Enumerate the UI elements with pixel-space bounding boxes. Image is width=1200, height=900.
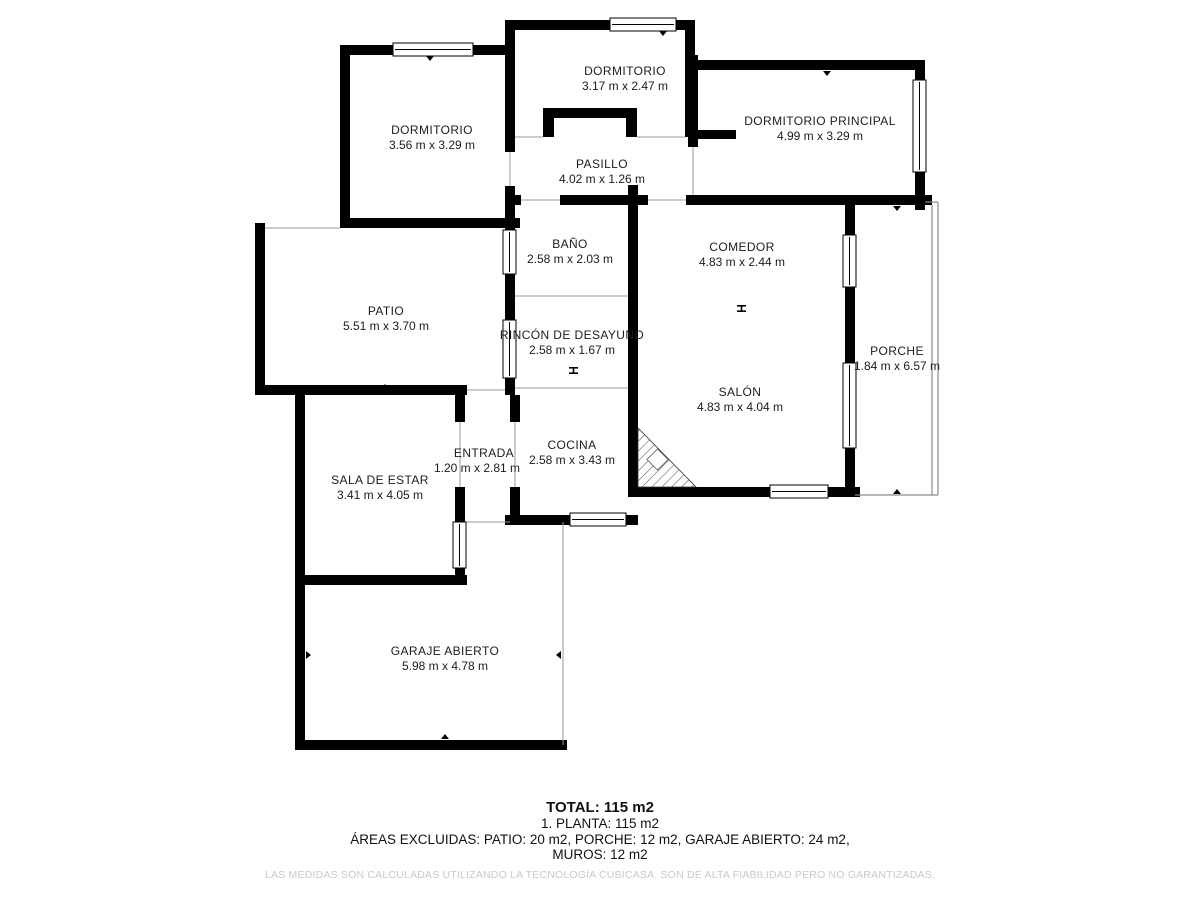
room-dims-label: 4.83 m x 4.04 m bbox=[697, 400, 783, 414]
window bbox=[503, 230, 516, 274]
window bbox=[770, 485, 828, 498]
room-name-label: ENTRADA bbox=[454, 446, 514, 460]
room-dims-label: 5.98 m x 4.78 m bbox=[402, 659, 488, 673]
room-name-label: SALÓN bbox=[719, 384, 762, 399]
area-summary: TOTAL: 115 m2 1. PLANTA: 115 m2 ÁREAS EX… bbox=[0, 799, 1200, 863]
window bbox=[610, 18, 676, 31]
floorplan-page: DORMITORIO 3.56 m x 3.29 m DORMITORIO 3.… bbox=[0, 0, 1200, 900]
window bbox=[913, 80, 926, 172]
room-name-label: BAÑO bbox=[552, 237, 588, 251]
room-dims-label: 1.84 m x 6.57 m bbox=[854, 359, 940, 373]
room-name-label: COCINA bbox=[547, 438, 596, 452]
room-name-label: GARAJE ABIERTO bbox=[391, 644, 500, 658]
room-dims-label: 3.56 m x 3.29 m bbox=[389, 138, 475, 152]
room-dims-label: 1.20 m x 2.81 m bbox=[434, 461, 520, 475]
room-dims-label: 5.51 m x 3.70 m bbox=[343, 319, 429, 333]
room-name-label: SALA DE ESTAR bbox=[331, 473, 429, 487]
room-name-label: RINCÓN DE DESAYUNO bbox=[500, 327, 644, 342]
room-name-label: DORMITORIO bbox=[391, 123, 473, 137]
room-name-label: DORMITORIO PRINCIPAL bbox=[744, 114, 896, 128]
corner-hatch bbox=[638, 428, 696, 487]
walls-area-label: MUROS: 12 m2 bbox=[0, 847, 1200, 863]
total-area-label: TOTAL: 115 m2 bbox=[0, 799, 1200, 816]
window bbox=[570, 513, 626, 526]
room-divider-marker bbox=[737, 305, 746, 312]
window bbox=[393, 43, 473, 56]
room-dims-label: 2.58 m x 3.43 m bbox=[529, 453, 615, 467]
window bbox=[453, 522, 466, 568]
room-name-label: PORCHE bbox=[870, 344, 924, 358]
room-divider-marker bbox=[569, 367, 578, 374]
excluded-areas-label: ÁREAS EXCLUIDAS: PATIO: 20 m2, PORCHE: 1… bbox=[0, 832, 1200, 848]
room-dims-label: 3.41 m x 4.05 m bbox=[337, 488, 423, 502]
room-dims-label: 4.83 m x 2.44 m bbox=[699, 255, 785, 269]
room-dims-label: 4.99 m x 3.29 m bbox=[777, 129, 863, 143]
floor-plan-svg: DORMITORIO 3.56 m x 3.29 m DORMITORIO 3.… bbox=[0, 0, 1200, 900]
room-dims-label: 2.58 m x 2.03 m bbox=[527, 252, 613, 266]
room-name-label: COMEDOR bbox=[709, 240, 774, 254]
room-dims-label: 3.17 m x 2.47 m bbox=[582, 79, 668, 93]
window bbox=[843, 235, 856, 287]
room-name-label: PASILLO bbox=[576, 157, 628, 171]
room-name-label: DORMITORIO bbox=[584, 64, 666, 78]
floor-area-label: 1. PLANTA: 115 m2 bbox=[0, 816, 1200, 832]
room-dims-label: 2.58 m x 1.67 m bbox=[529, 343, 615, 357]
room-dims-label: 4.02 m x 1.26 m bbox=[559, 172, 645, 186]
measurement-disclaimer: LAS MEDIDAS SON CALCULADAS UTILIZANDO LA… bbox=[0, 869, 1200, 881]
window bbox=[843, 363, 856, 448]
room-name-label: PATIO bbox=[368, 304, 404, 318]
